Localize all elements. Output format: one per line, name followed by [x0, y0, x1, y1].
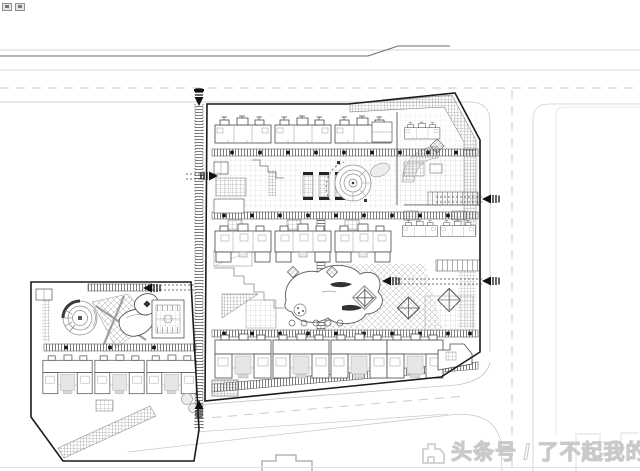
- screenshot-viewport: 头条号 / 了不起我的家: [0, 0, 640, 471]
- entrance-marker: [482, 277, 499, 286]
- toutiao-house-logo-icon: [420, 437, 446, 465]
- building: [441, 220, 476, 237]
- building: [43, 355, 92, 394]
- building: [215, 116, 271, 143]
- spiral-garden: [63, 301, 97, 335]
- building: [215, 334, 271, 378]
- east-road: [490, 90, 640, 471]
- building: [275, 224, 331, 262]
- building: [387, 334, 443, 378]
- building: [215, 224, 271, 262]
- building: [275, 116, 331, 143]
- north-road: [0, 46, 640, 122]
- page-bottom-rule: [0, 467, 640, 468]
- sports-court: [152, 300, 184, 338]
- building: [335, 224, 391, 262]
- building: [95, 355, 144, 394]
- building: [273, 334, 329, 378]
- building: [147, 355, 196, 394]
- site-plan-drawing: [0, 0, 640, 471]
- watermark: 头条号 / 了不起我的家: [420, 436, 640, 466]
- main-parcel: [205, 93, 480, 401]
- building: [331, 334, 387, 378]
- watermark-text: 头条号 / 了不起我的家: [451, 436, 640, 466]
- west-parcel: [31, 282, 199, 461]
- entrance-marker: [195, 89, 204, 106]
- townhouse-row-west: [43, 355, 196, 394]
- building: [403, 220, 438, 237]
- building: [405, 122, 440, 139]
- entrance-marker: [482, 195, 499, 204]
